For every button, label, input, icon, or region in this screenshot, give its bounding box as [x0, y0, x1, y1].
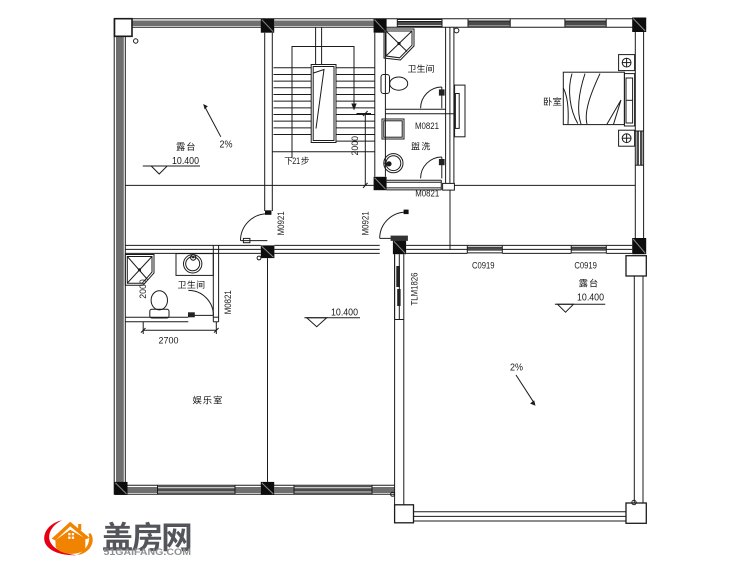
svg-text:51GAIFANG.COM: 51GAIFANG.COM	[104, 547, 192, 557]
svg-text:M0821: M0821	[415, 189, 439, 199]
svg-text:2000: 2000	[350, 136, 360, 156]
svg-text:C0919: C0919	[472, 260, 495, 271]
svg-text:2700: 2700	[159, 336, 179, 347]
svg-text:2%: 2%	[510, 362, 523, 373]
svg-text:C0919: C0919	[574, 260, 597, 271]
svg-text:2%: 2%	[220, 140, 233, 151]
svg-text:2000: 2000	[138, 279, 148, 299]
svg-text:M0821: M0821	[223, 290, 233, 314]
svg-text:21: 21	[292, 156, 300, 166]
svg-text:M0821: M0821	[415, 121, 439, 131]
svg-text:M0921: M0921	[360, 211, 370, 235]
svg-text:M0921: M0921	[276, 211, 286, 235]
svg-text:10.400: 10.400	[577, 293, 604, 304]
svg-text:10.400: 10.400	[331, 308, 358, 319]
svg-text:TLM1826: TLM1826	[409, 273, 419, 306]
svg-text:10.400: 10.400	[172, 156, 199, 167]
